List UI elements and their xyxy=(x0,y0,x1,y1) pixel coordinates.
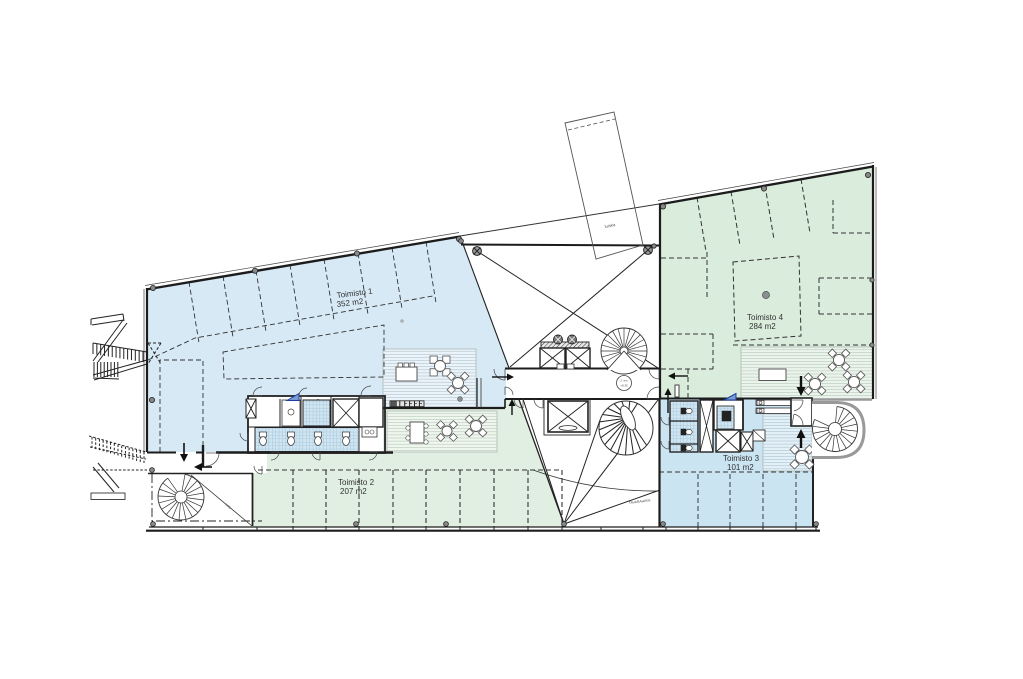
svg-text:Toimisto 2: Toimisto 2 xyxy=(338,478,375,487)
svg-text:KRS: KRS xyxy=(224,503,232,510)
svg-text:2. krs: 2. krs xyxy=(620,379,628,383)
svg-text:284 m2: 284 m2 xyxy=(749,322,776,331)
svg-text:luiska: luiska xyxy=(604,222,616,229)
svg-text:+8.35: +8.35 xyxy=(620,384,628,388)
svg-text:TAVARAHISSI: TAVARAHISSI xyxy=(629,498,651,505)
svg-text:101 m2: 101 m2 xyxy=(727,463,754,472)
svg-text:207 m2: 207 m2 xyxy=(340,487,367,496)
svg-text:Toimisto 4: Toimisto 4 xyxy=(747,313,784,322)
svg-text:Toimisto 3: Toimisto 3 xyxy=(723,454,760,463)
